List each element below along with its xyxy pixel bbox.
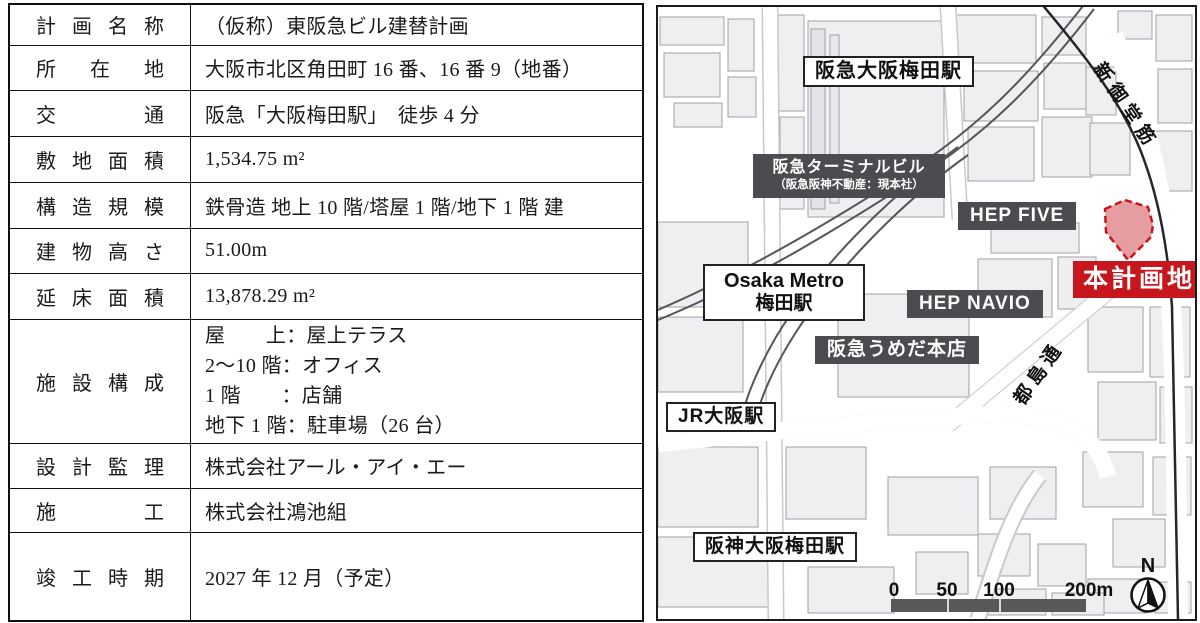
- row-label: 構造規模: [9, 182, 191, 228]
- label-hankyu-osaka-umeda-station: 阪急大阪梅田駅: [803, 56, 974, 87]
- location-map: 阪急大阪梅田駅 阪急ターミナルビル （阪急阪神不動産：現本社） HEP FIVE…: [656, 5, 1197, 621]
- row-label: 施工: [9, 488, 191, 532]
- terminal-building-note: （阪急阪神不動産：現本社）: [759, 179, 939, 192]
- row-label: 敷地面積: [9, 136, 191, 182]
- row-label: 延床面積: [9, 273, 191, 319]
- table-row: 計画名称 （仮称）東阪急ビル建替計画: [9, 4, 643, 45]
- label-hep-navio: HEP NAVIO: [907, 290, 1043, 318]
- osaka-metro-name: Osaka Metro: [711, 270, 857, 293]
- label-hankyu-umeda-main-store: 阪急うめだ本店: [815, 336, 979, 364]
- table-row: 竣工時期 2027 年 12 月（予定）: [9, 532, 643, 621]
- scale-tick-100: 100: [983, 580, 1015, 602]
- label-osaka-metro-umeda-station: Osaka Metro 梅田駅: [703, 264, 865, 321]
- row-label: 計画名称: [9, 4, 191, 45]
- row-label: 所在地: [9, 45, 191, 90]
- label-hep-five: HEP FIVE: [958, 202, 1076, 230]
- row-label: 交通: [9, 90, 191, 136]
- label-hankyu-terminal-building: 阪急ターミナルビル （阪急阪神不動産：現本社）: [753, 154, 945, 198]
- table-row: 所在地 大阪市北区角田町 16 番、16 番 9（地番）: [9, 45, 643, 90]
- row-value: 株式会社鴻池組: [191, 488, 644, 532]
- project-site-polygon: [1105, 200, 1153, 260]
- table-row: 設計監理 株式会社アール・アイ・エー: [9, 443, 643, 488]
- table-row: 敷地面積 1,534.75 m²: [9, 136, 643, 182]
- row-label: 建物高さ: [9, 228, 191, 273]
- table-row: 構造規模 鉄骨造 地上 10 階/塔屋 1 階/地下 1 階 建: [9, 182, 643, 228]
- scale-tick-200m: 200m: [1065, 580, 1114, 602]
- row-value: 阪急「大阪梅田駅」 徒歩 4 分: [191, 90, 644, 136]
- label-jr-osaka-station: JR大阪駅: [666, 402, 776, 432]
- row-value: 2027 年 12 月（予定）: [191, 532, 644, 621]
- table-row: 施工 株式会社鴻池組: [9, 488, 643, 532]
- scale-tick-50: 50: [936, 580, 957, 602]
- table-row: 交通 阪急「大阪梅田駅」 徒歩 4 分: [9, 90, 643, 136]
- label-project-site: 本計画地: [1073, 261, 1197, 298]
- facility-line: 2～10 階：オフィス: [205, 351, 641, 381]
- osaka-metro-station: 梅田駅: [711, 293, 857, 315]
- row-label: 施設構成: [9, 319, 191, 443]
- row-label: 竣工時期: [9, 532, 191, 621]
- table-row: 施設構成 屋 上：屋上テラス 2～10 階：オフィス 1 階 ：店舗 地下 1 …: [9, 319, 643, 443]
- row-value: 大阪市北区角田町 16 番、16 番 9（地番）: [191, 45, 644, 90]
- table-row: 延床面積 13,878.29 m²: [9, 273, 643, 319]
- table-row: 建物高さ 51.00m: [9, 228, 643, 273]
- north-label: N: [1141, 555, 1155, 578]
- scale-tick-0: 0: [889, 580, 900, 602]
- row-value: 13,878.29 m²: [191, 273, 644, 319]
- press-release-page: 計画名称 （仮称）東阪急ビル建替計画 所在地 大阪市北区角田町 16 番、16 …: [0, 0, 1200, 623]
- row-value: 51.00m: [191, 228, 644, 273]
- row-value: 株式会社アール・アイ・エー: [191, 443, 644, 488]
- facility-line: 屋 上：屋上テラス: [205, 321, 641, 351]
- row-value: （仮称）東阪急ビル建替計画: [191, 4, 644, 45]
- facility-line: 1 階 ：店舗: [205, 381, 641, 411]
- row-value-facility: 屋 上：屋上テラス 2～10 階：オフィス 1 階 ：店舗 地下 1 階：駐車場…: [191, 319, 644, 443]
- terminal-building-name: 阪急ターミナルビル: [759, 159, 939, 177]
- label-hanshin-osaka-umeda-station: 阪神大阪梅田駅: [693, 532, 857, 562]
- row-value: 1,534.75 m²: [191, 136, 644, 182]
- row-value: 鉄骨造 地上 10 階/塔屋 1 階/地下 1 階 建: [191, 182, 644, 228]
- project-spec-table: 計画名称 （仮称）東阪急ビル建替計画 所在地 大阪市北区角田町 16 番、16 …: [8, 3, 644, 622]
- row-label: 設計監理: [9, 443, 191, 488]
- north-compass-icon: [1132, 579, 1165, 612]
- facility-line: 地下 1 階：駐車場（26 台）: [205, 411, 641, 441]
